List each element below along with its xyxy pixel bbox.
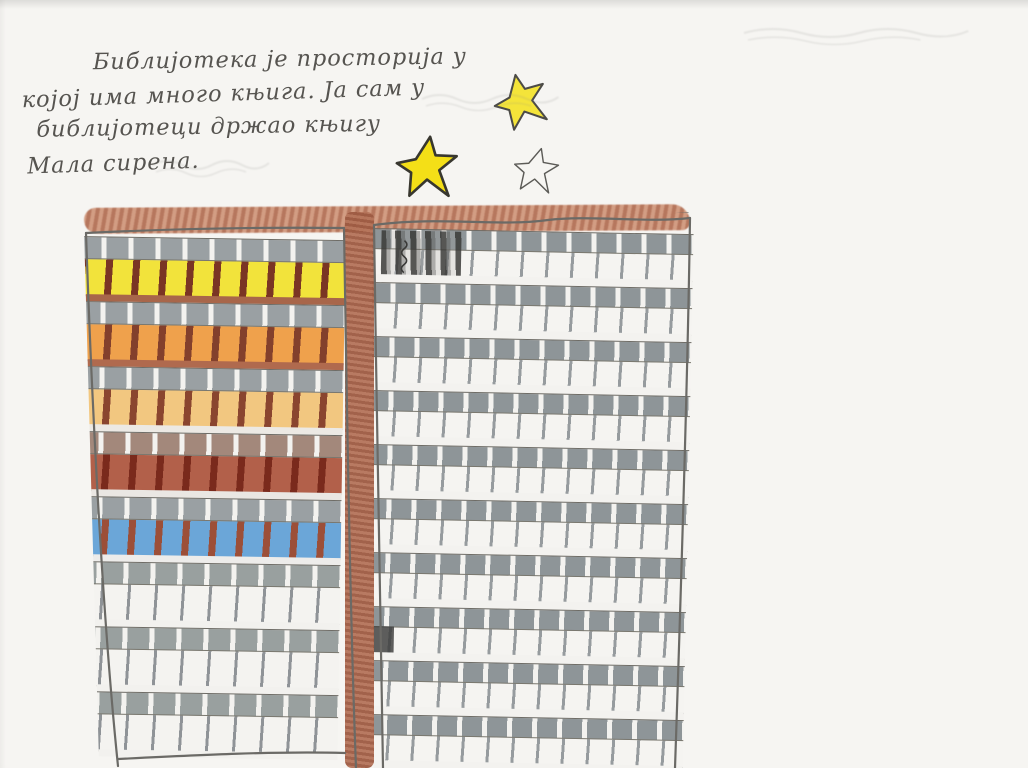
ghost-signature-top-right [742, 16, 972, 50]
building-right-pencil-section [372, 212, 694, 768]
dark-window-block [372, 626, 394, 653]
library-building-drawing [78, 212, 694, 768]
star-left [391, 131, 464, 204]
squiggle-mark [397, 238, 412, 274]
building-left-colored-section [80, 212, 346, 768]
ghost-smudge-text [150, 148, 270, 182]
dark-scribbled-windows [381, 230, 462, 276]
star-right [507, 141, 565, 199]
right-section-floors [372, 212, 694, 768]
left-section-floors [80, 212, 346, 768]
scanned-drawing-page: Библијотека је просторија укојој има мно… [0, 0, 1028, 768]
brown-divider-stripe [345, 212, 374, 768]
ghost-text-near-stars [420, 84, 560, 114]
